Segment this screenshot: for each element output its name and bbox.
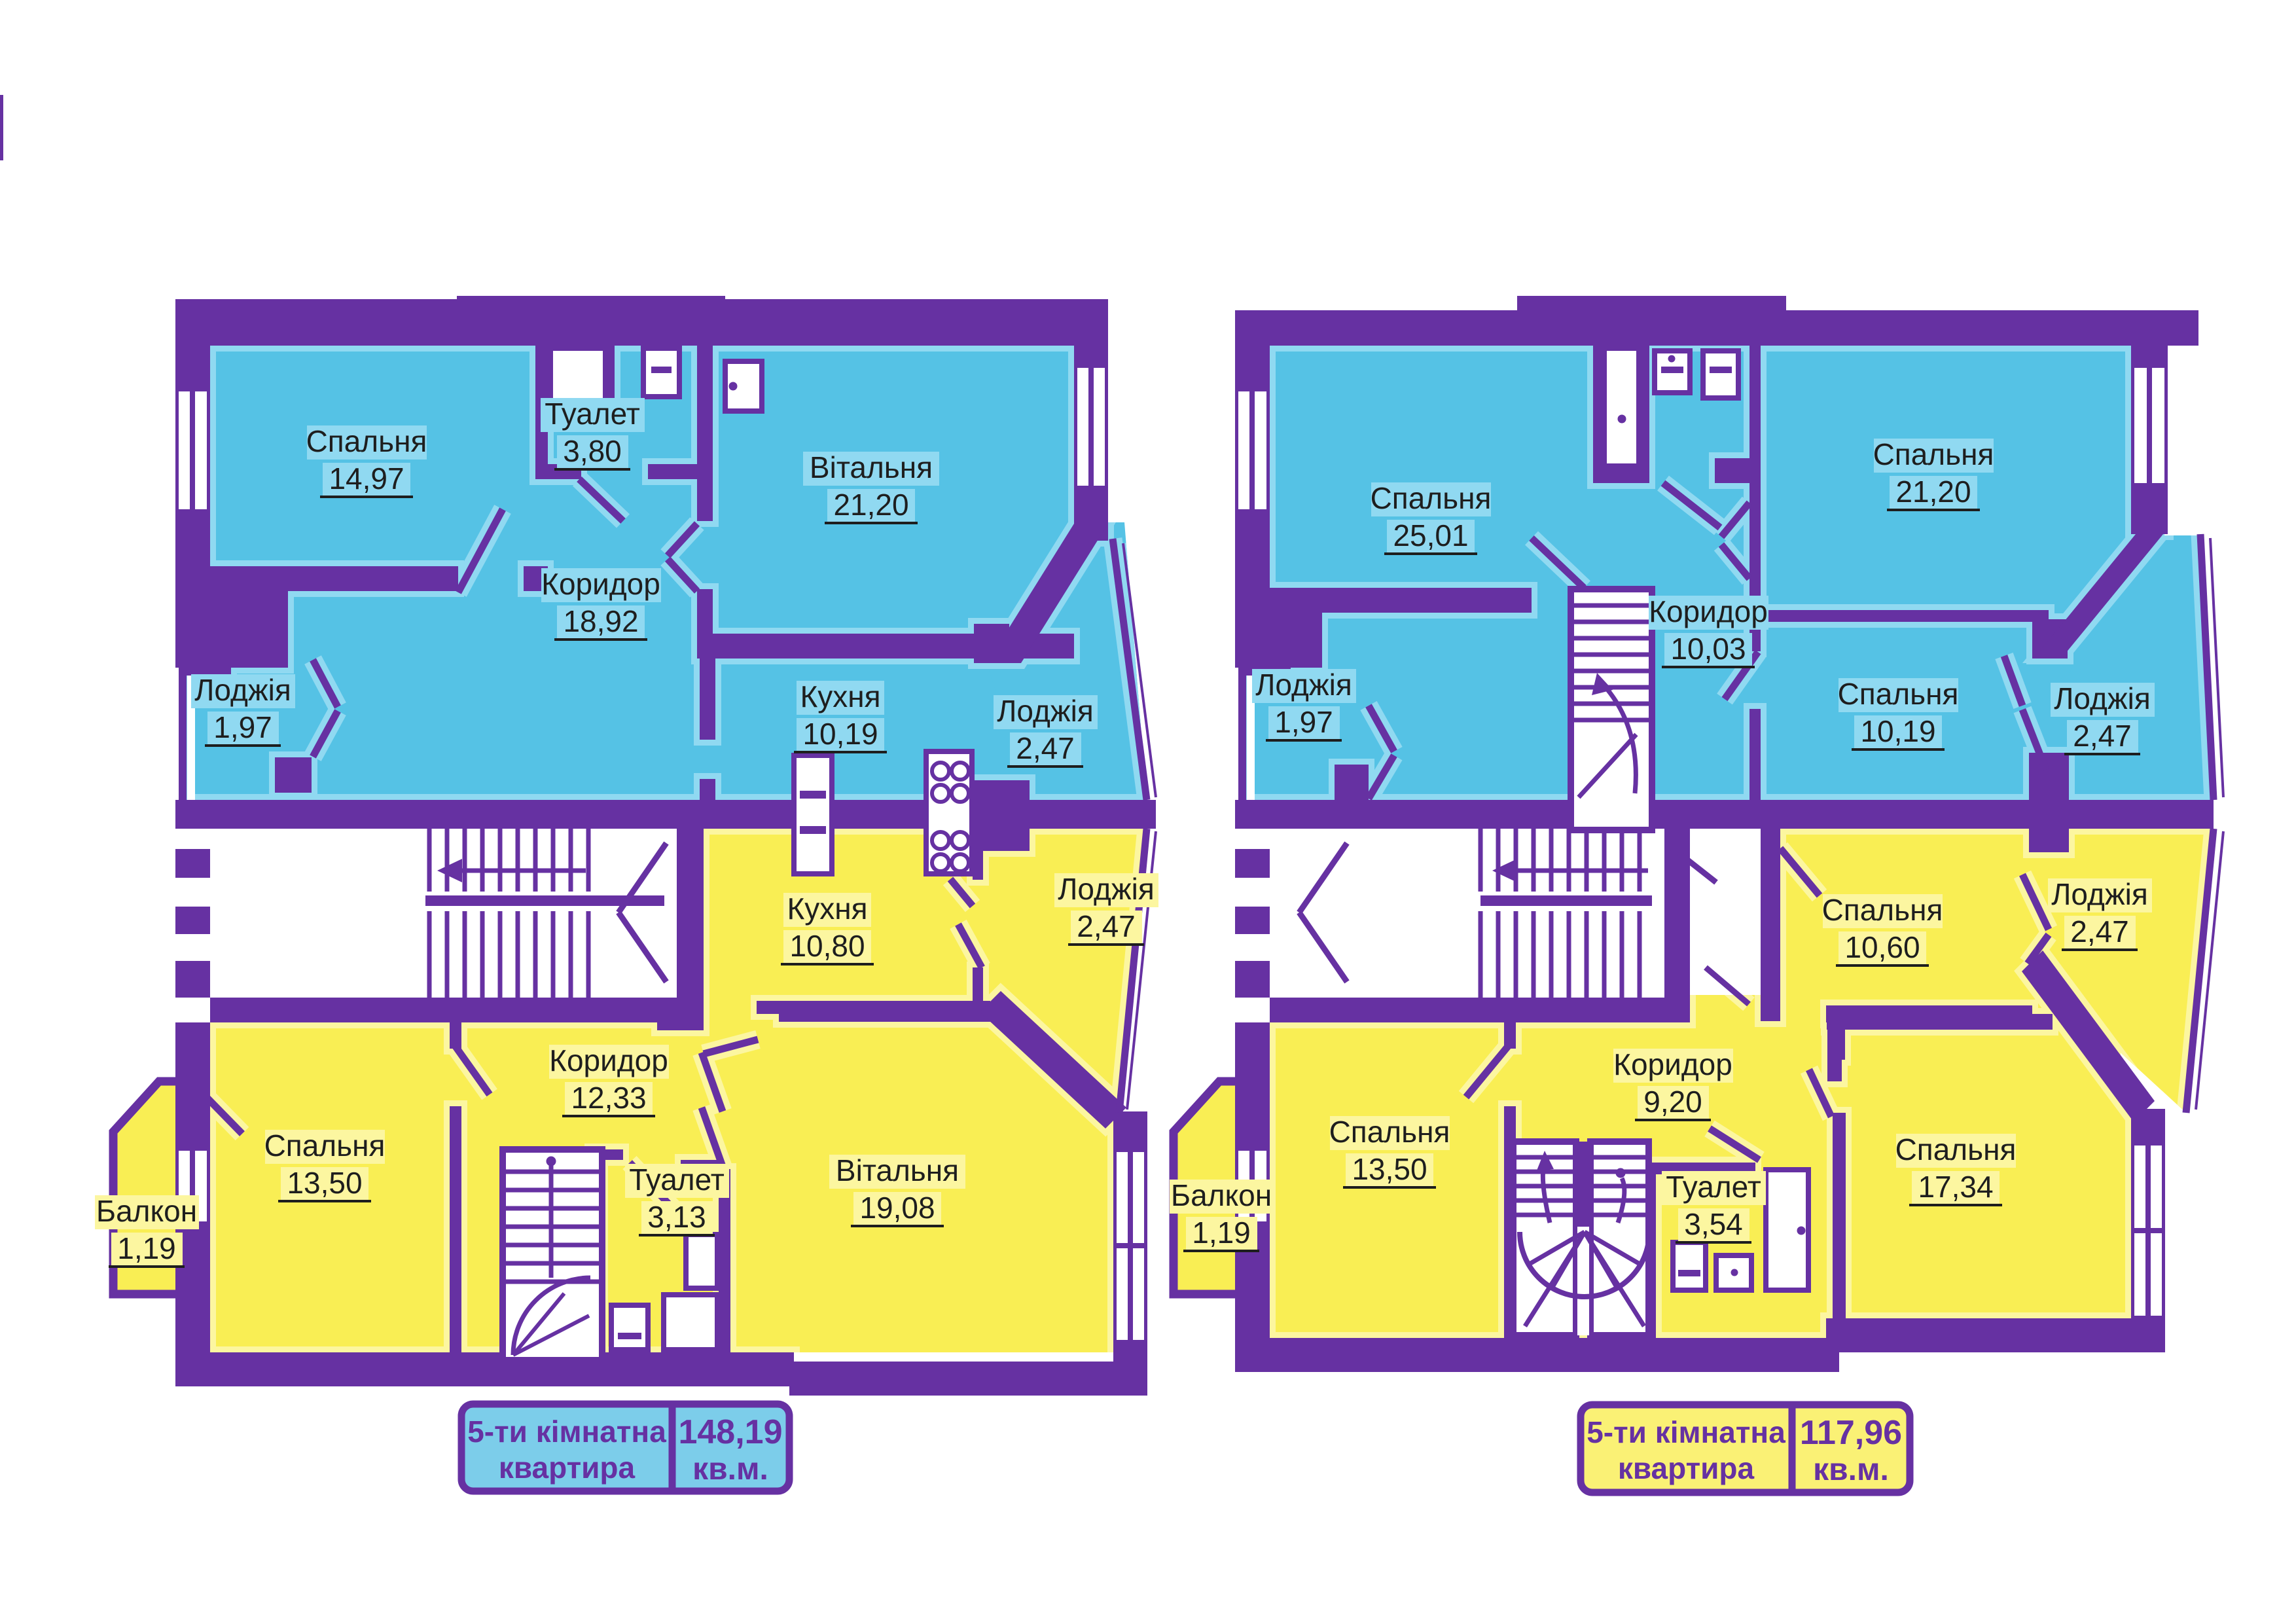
svg-text:14,97: 14,97: [329, 461, 404, 496]
svg-text:2,47: 2,47: [2073, 719, 2132, 753]
svg-text:1,97: 1,97: [213, 710, 272, 744]
svg-text:Вітальня: Вітальня: [836, 1153, 959, 1187]
svg-text:10,60: 10,60: [1844, 930, 1920, 964]
svg-text:Туалет: Туалет: [629, 1163, 725, 1197]
svg-text:Туалет: Туалет: [1666, 1170, 1761, 1204]
svg-text:Вітальня: Вітальня: [810, 450, 933, 484]
svg-text:13,50: 13,50: [1352, 1152, 1427, 1186]
svg-text:10,80: 10,80: [789, 929, 865, 963]
svg-text:18,92: 18,92: [563, 604, 638, 638]
svg-text:Спальня: Спальня: [264, 1128, 386, 1163]
svg-text:10,19: 10,19: [802, 717, 878, 751]
svg-text:Туалет: Туалет: [545, 397, 640, 431]
svg-text:Спальня: Спальня: [1895, 1132, 2017, 1166]
svg-text:Спальня: Спальня: [1838, 677, 1959, 711]
svg-text:Спальня: Спальня: [1329, 1115, 1450, 1149]
svg-text:10,19: 10,19: [1860, 714, 1935, 748]
svg-text:Балкон: Балкон: [96, 1194, 197, 1228]
svg-text:Коридор: Коридор: [541, 567, 660, 601]
svg-text:2,47: 2,47: [1016, 731, 1075, 765]
svg-text:кв.м.: кв.м.: [1813, 1453, 1889, 1487]
svg-text:9,20: 9,20: [1643, 1085, 1702, 1119]
svg-text:Кухня: Кухня: [787, 892, 867, 926]
svg-text:квартира: квартира: [1618, 1451, 1755, 1485]
svg-text:Кухня: Кухня: [800, 679, 880, 713]
svg-text:5-ти кімнатна: 5-ти кімнатна: [467, 1415, 666, 1449]
svg-text:кв.м.: кв.м.: [692, 1452, 768, 1487]
svg-text:Спальня: Спальня: [306, 424, 427, 458]
svg-text:25,01: 25,01: [1393, 518, 1468, 552]
svg-text:12,33: 12,33: [571, 1081, 646, 1115]
svg-text:Коридор: Коридор: [549, 1043, 668, 1077]
svg-text:Спальня: Спальня: [1371, 481, 1492, 515]
svg-text:Лоджія: Лоджія: [2054, 681, 2151, 715]
svg-text:Коридор: Коридор: [1649, 594, 1768, 628]
svg-text:1,19: 1,19: [1192, 1216, 1251, 1250]
svg-text:117,96: 117,96: [1800, 1414, 1902, 1452]
svg-text:3,13: 3,13: [647, 1200, 706, 1234]
svg-text:Лоджія: Лоджія: [997, 694, 1094, 728]
svg-text:148,19: 148,19: [678, 1413, 782, 1451]
svg-text:Коридор: Коридор: [1613, 1047, 1732, 1081]
svg-text:Лоджія: Лоджія: [194, 673, 291, 707]
svg-text:Балкон: Балкон: [1171, 1178, 1272, 1212]
svg-text:13,50: 13,50: [287, 1166, 362, 1200]
svg-text:17,34: 17,34: [1918, 1170, 1993, 1204]
svg-text:19,08: 19,08: [859, 1191, 935, 1225]
svg-text:3,54: 3,54: [1684, 1207, 1743, 1241]
svg-text:21,20: 21,20: [1895, 475, 1971, 509]
svg-text:Лоджія: Лоджія: [1255, 668, 1352, 702]
svg-text:10,03: 10,03: [1670, 632, 1746, 666]
svg-text:1,19: 1,19: [117, 1231, 176, 1265]
svg-text:квартира: квартира: [499, 1451, 636, 1485]
svg-text:Лоджія: Лоджія: [2051, 877, 2148, 911]
svg-text:21,20: 21,20: [833, 488, 908, 522]
svg-text:2,47: 2,47: [2070, 914, 2129, 948]
svg-text:3,80: 3,80: [563, 434, 622, 468]
svg-text:Спальня: Спальня: [1873, 437, 1994, 471]
svg-text:5-ти кімнатна: 5-ти кімнатна: [1587, 1415, 1785, 1449]
svg-text:1,97: 1,97: [1274, 705, 1333, 739]
svg-text:Спальня: Спальня: [1822, 893, 1943, 927]
svg-text:2,47: 2,47: [1077, 909, 1136, 943]
svg-text:Лоджія: Лоджія: [1058, 872, 1155, 906]
